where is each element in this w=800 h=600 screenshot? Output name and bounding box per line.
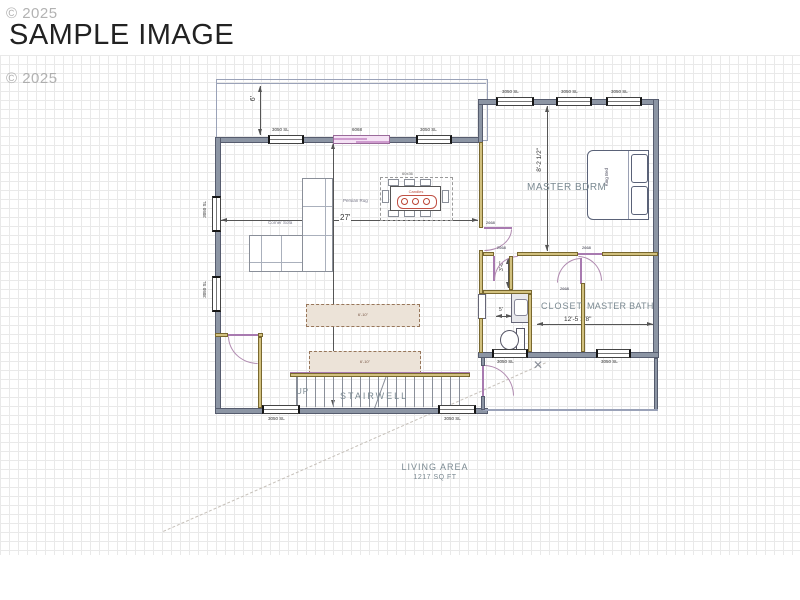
window [262, 405, 300, 414]
bath-door-panel [578, 253, 603, 255]
dim-line-bath-width [537, 324, 653, 325]
wall-closet-top [483, 252, 494, 256]
wall-right [653, 99, 659, 358]
toilet-bowl [500, 330, 519, 350]
rug-label: Persian Rug [343, 199, 368, 204]
living-area-label: LIVING AREA [395, 463, 475, 472]
island-label: 6'-10" [306, 313, 420, 317]
dim-vanity-width: 5' [498, 308, 504, 313]
wall-wc-side [509, 256, 513, 290]
wall-wc-top [483, 290, 532, 294]
floor-plan-page: © 2025 SAMPLE IMAGE © 2025 ✕ 6' 27' 24' … [0, 0, 800, 600]
wall-divider-mid [479, 142, 483, 228]
wall-closet-bath-divider [581, 283, 585, 352]
dining-chair [404, 179, 415, 186]
sofa-back-line [325, 179, 326, 271]
wall-divider-upper [478, 104, 483, 143]
window-label: 3050 SL [502, 90, 519, 95]
window-label: 3050 SL [203, 201, 208, 218]
wall-divider-mid [479, 250, 483, 294]
window [606, 97, 642, 106]
page-title: SAMPLE IMAGE [9, 19, 234, 52]
window-label: 3050 SL [601, 360, 618, 365]
room-label-master-bdrm: MASTER BDRM [527, 183, 606, 193]
wall-wc-side [528, 294, 532, 352]
dining-chair [442, 190, 449, 203]
wall-entry [215, 333, 228, 337]
door-size-label: 2668 [560, 287, 569, 291]
window-label: 3050 SL [561, 90, 578, 95]
window [212, 276, 221, 312]
table-decor-label: Candles [396, 189, 436, 194]
window [496, 97, 534, 106]
candle-icon [401, 198, 408, 205]
window [268, 135, 304, 144]
dim-line-vanity [496, 316, 512, 317]
window [492, 349, 528, 358]
dining-chair [388, 210, 399, 217]
dim-line-deck [260, 86, 261, 135]
room-label-closet: CLOSET [541, 302, 583, 311]
dining-chair [382, 190, 389, 203]
bed-pillow [631, 154, 648, 183]
window-label: 3050 SL [497, 360, 514, 365]
dim-line-master-depth [547, 106, 548, 251]
dining-chair [420, 179, 431, 186]
window [556, 97, 592, 106]
sofa-cushion-line [303, 235, 332, 236]
sofa-back-line [250, 262, 302, 263]
sliding-door [333, 135, 390, 144]
wall-porch-right [654, 358, 658, 411]
dining-chair [404, 210, 415, 217]
sofa-arm-line [261, 236, 262, 271]
dining-chair [388, 179, 399, 186]
window [438, 405, 476, 414]
dim-master-depth: 8'-2 1/2" [536, 148, 545, 172]
bed-fold-line [628, 151, 629, 219]
room-label-master-bath: MASTER BATH [587, 302, 654, 311]
x-marker-icon: ✕ [533, 358, 543, 372]
window-label: 3050 SL [268, 417, 285, 422]
window-label: 3050 SL [420, 128, 437, 133]
window-label: 3050 SL [203, 281, 208, 298]
stair-up-label: UP [296, 388, 309, 396]
sofa-cushion-line [303, 206, 332, 207]
window [212, 196, 221, 232]
wall-porch-jamb [481, 357, 485, 366]
sofa-seat [249, 235, 303, 272]
window-label: 3050 SL [272, 128, 289, 133]
wall-closet-top [602, 252, 658, 256]
dining-table-size-label: 60x36 [402, 172, 413, 176]
door-size-label: 2668 [497, 246, 506, 250]
candle-icon [423, 198, 430, 205]
pocket-door [478, 294, 486, 319]
sofa-label: Corner Sofa [268, 221, 292, 226]
copyright-watermark-mid: © 2025 [6, 70, 58, 87]
candle-icon [412, 198, 419, 205]
dim-deck-depth: 6' [249, 96, 258, 101]
wall-entry-side [258, 337, 262, 408]
window [416, 135, 452, 144]
door-size-label: 2668 [486, 221, 495, 225]
deck-inner-line [216, 83, 486, 84]
sliding-door-label: 6068 [352, 128, 362, 133]
sofa-chaise [302, 178, 333, 272]
door-size-label: 2668 [582, 246, 591, 250]
wall-divider-mid [479, 318, 483, 353]
bed-pillow [631, 186, 648, 215]
wall-porch-jamb [481, 396, 485, 410]
dining-chair [420, 210, 431, 217]
stairwell-label: STAIRWELL [340, 392, 408, 401]
island-label: 6'-10" [309, 360, 421, 364]
wall-closet-top [517, 252, 578, 256]
window-label: 3050 SL [611, 90, 628, 95]
sink [514, 299, 528, 316]
window [596, 349, 631, 358]
porch-edge-line [483, 409, 658, 411]
window-label: 3050 SL [444, 417, 461, 422]
sofa-cushion-line [281, 236, 282, 271]
dim-bath-width: 12'-5 1/8" [563, 317, 592, 324]
wall-stair-top [290, 373, 470, 377]
dim-living-width: 27' [339, 214, 351, 222]
living-area-sqft: 1217 SQ FT [395, 474, 475, 481]
